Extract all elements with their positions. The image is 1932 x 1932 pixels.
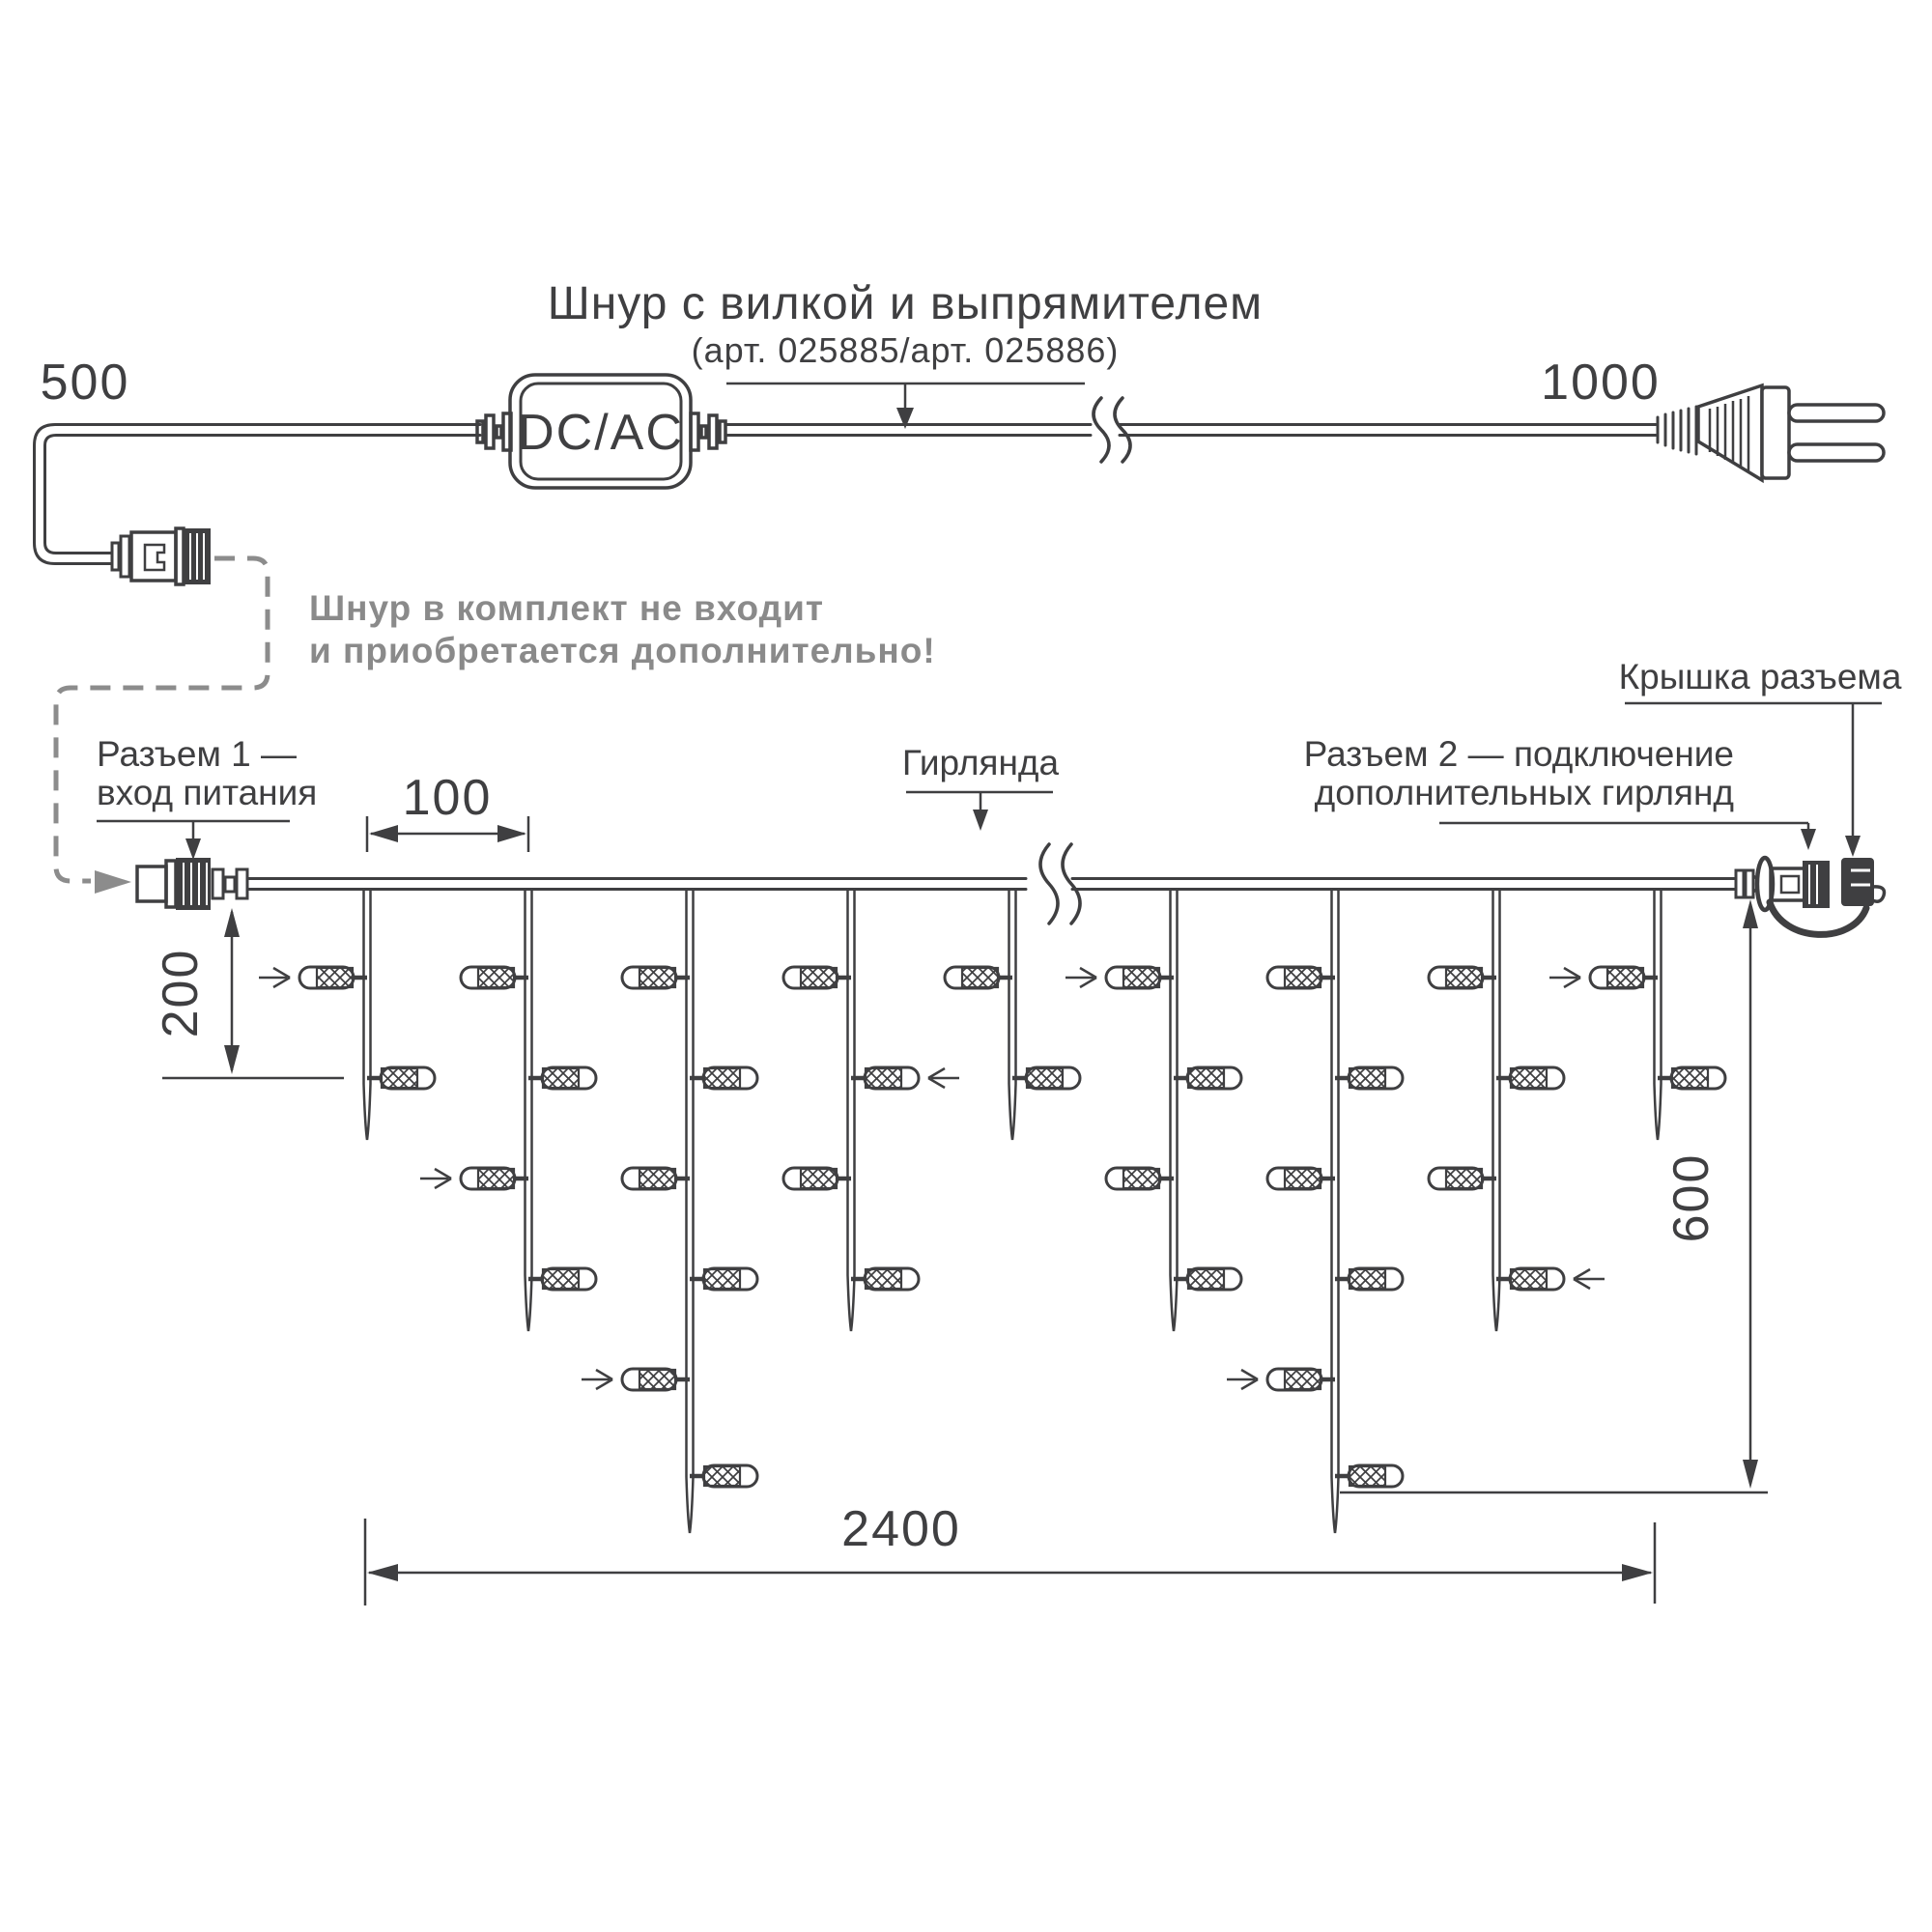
note-line-1: Шнур в комплект не входит bbox=[309, 588, 824, 628]
connector1-label-line1: Разъем 1 — bbox=[97, 734, 297, 774]
garland-label: Гирлянда bbox=[902, 743, 1060, 782]
dim-2400: 2400 bbox=[365, 1501, 1655, 1605]
connector-1-power-input bbox=[137, 858, 247, 910]
led-bulb bbox=[1174, 1067, 1241, 1089]
dim-200: 200 bbox=[153, 908, 344, 1078]
bulb-direction-arrow bbox=[1065, 968, 1096, 987]
plug-prong bbox=[1789, 405, 1884, 421]
drop-tip bbox=[1171, 1275, 1178, 1331]
bulb-direction-arrow bbox=[259, 968, 290, 987]
dim-600: 600 bbox=[1340, 899, 1768, 1492]
led-bulb bbox=[1012, 1067, 1080, 1089]
garland-assembly: Разъем 1 — вход питания Гирлянда 100 bbox=[97, 657, 1902, 1605]
connector2-arrowhead bbox=[1801, 829, 1816, 850]
drop-tip bbox=[1332, 1477, 1339, 1533]
dim-200-label: 200 bbox=[153, 949, 209, 1038]
icicle-drops-layer bbox=[259, 888, 1725, 1533]
cord-left-length-label: 500 bbox=[41, 355, 130, 411]
bulb-direction-arrow bbox=[420, 1169, 451, 1188]
led-bulb bbox=[1106, 1168, 1174, 1189]
cord-left-inner-line bbox=[45, 436, 481, 554]
bulb-direction-arrow bbox=[1574, 1269, 1605, 1289]
dc-ac-converter-box: DC/AC bbox=[477, 375, 725, 488]
led-bulb bbox=[622, 967, 690, 988]
led-bulb bbox=[851, 1067, 959, 1089]
led-bulb bbox=[1267, 967, 1335, 988]
icicle-drop bbox=[783, 888, 959, 1331]
drop-tip bbox=[526, 1275, 532, 1331]
cord-title: Шнур с вилкой и выпрямителем bbox=[548, 278, 1263, 329]
dim-600-label: 600 bbox=[1663, 1153, 1719, 1243]
converter-text: DC/AC bbox=[518, 405, 684, 461]
icicle-drop bbox=[259, 888, 435, 1140]
led-bulb bbox=[461, 967, 528, 988]
plug-base-block bbox=[1762, 387, 1789, 478]
cap-label: Крышка разъема bbox=[1619, 657, 1902, 696]
drop-tip bbox=[1655, 1084, 1662, 1140]
led-bulb bbox=[1335, 1268, 1403, 1290]
led-bulb bbox=[945, 967, 1012, 988]
led-bulb bbox=[690, 1465, 757, 1487]
dim-100-label: 100 bbox=[403, 770, 493, 826]
connector2-label-line1: Разъем 2 — подключение bbox=[1304, 734, 1734, 774]
led-bulb bbox=[367, 1067, 435, 1089]
drop-tip bbox=[848, 1275, 855, 1331]
led-bulb bbox=[1267, 1168, 1335, 1189]
drop-tip bbox=[1493, 1275, 1500, 1331]
led-bulb bbox=[1335, 1067, 1403, 1089]
icicle-garland-dimension-diagram: 500 DC/AC bbox=[0, 0, 1932, 1932]
bulb-direction-arrow bbox=[1549, 968, 1580, 987]
diagram-canvas: 500 DC/AC bbox=[0, 0, 1932, 1932]
led-bulb bbox=[622, 1168, 690, 1189]
cord-break-symbol bbox=[1094, 398, 1130, 462]
cord-right-length-label: 1000 bbox=[1541, 355, 1661, 411]
note-line-2: и приобретается дополнительно! bbox=[309, 631, 936, 670]
led-bulb bbox=[783, 1168, 851, 1189]
connector2-label-line2: дополнительных гирлянд bbox=[1315, 773, 1734, 812]
led-bulb bbox=[1429, 967, 1496, 988]
icicle-drop bbox=[1429, 888, 1605, 1331]
led-bulb bbox=[259, 967, 367, 988]
icicle-drop bbox=[420, 888, 596, 1331]
dim-100: 100 bbox=[367, 770, 528, 852]
icicle-drop bbox=[1065, 888, 1241, 1331]
led-bulb bbox=[1335, 1465, 1403, 1487]
led-bulb bbox=[690, 1067, 757, 1089]
icicle-drop bbox=[1227, 888, 1403, 1533]
led-bulb bbox=[582, 1369, 690, 1390]
led-bulb bbox=[528, 1067, 596, 1089]
bulb-direction-arrow bbox=[928, 1068, 959, 1088]
led-bulb bbox=[783, 967, 851, 988]
cord-left-outer-line bbox=[35, 425, 481, 564]
connector-2-extension bbox=[1736, 858, 1885, 934]
led-bulb bbox=[1227, 1369, 1335, 1390]
plug-body bbox=[1698, 385, 1762, 480]
led-bulb bbox=[1658, 1067, 1725, 1089]
cord-end-connector bbox=[112, 528, 211, 584]
dim-2400-label: 2400 bbox=[841, 1501, 961, 1557]
connector1-arrowhead bbox=[185, 838, 201, 860]
garland-break-symbol bbox=[1040, 844, 1080, 923]
plug-strain-relief bbox=[1658, 407, 1696, 454]
connector-cap bbox=[1841, 858, 1885, 906]
bulb-direction-arrow bbox=[582, 1370, 612, 1389]
led-bulb bbox=[690, 1268, 757, 1290]
not-included-arrowhead bbox=[95, 870, 131, 894]
icicle-drop bbox=[582, 888, 757, 1533]
led-bulb bbox=[851, 1268, 919, 1290]
icicle-drop bbox=[1549, 888, 1725, 1140]
plug-prong bbox=[1789, 444, 1884, 461]
drop-tip bbox=[1009, 1084, 1016, 1140]
drop-tip bbox=[687, 1477, 694, 1533]
power-plug bbox=[1658, 385, 1884, 480]
led-bulb bbox=[1549, 967, 1658, 988]
icicle-drop bbox=[945, 888, 1080, 1140]
led-bulb bbox=[1065, 967, 1174, 988]
led-bulb bbox=[420, 1168, 528, 1189]
led-bulb bbox=[1429, 1168, 1496, 1189]
led-bulb bbox=[1496, 1067, 1564, 1089]
not-included-dashed-path bbox=[56, 558, 268, 881]
cap-label-arrowhead bbox=[1845, 836, 1861, 857]
led-bulb bbox=[528, 1268, 596, 1290]
garland-label-arrowhead bbox=[973, 810, 988, 831]
led-bulb bbox=[1496, 1268, 1605, 1290]
drop-tip bbox=[364, 1084, 371, 1140]
cord-subtitle: (арт. 025885/арт. 025886) bbox=[692, 330, 1120, 370]
connector1-label-line2: вход питания bbox=[97, 773, 317, 812]
led-bulb bbox=[1174, 1268, 1241, 1290]
bulb-direction-arrow bbox=[1227, 1370, 1258, 1389]
